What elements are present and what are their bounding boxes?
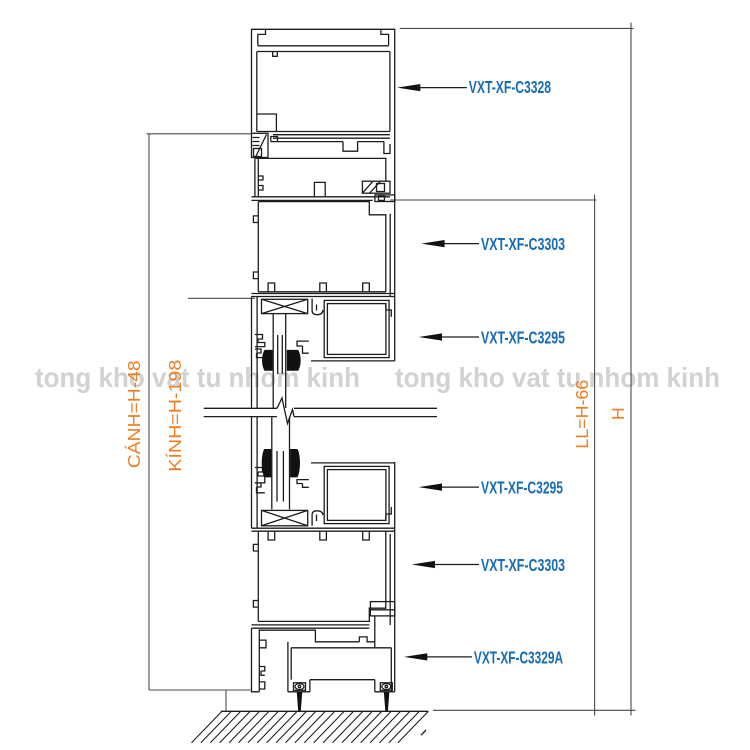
svg-text:VXT-XF-C3303: VXT-XF-C3303 — [481, 555, 565, 575]
svg-text:VXT-XF-C3329A: VXT-XF-C3329A — [474, 647, 563, 667]
svg-text:KÍNH=H-198: KÍNH=H-198 — [165, 360, 185, 472]
svg-text:VXT-XF-C3295: VXT-XF-C3295 — [481, 478, 563, 498]
svg-text:CÁNH=H-48: CÁNH=H-48 — [124, 360, 144, 468]
svg-text:tong kho vat tu nhom kinh: tong kho vat tu nhom kinh — [395, 362, 720, 393]
svg-text:H: H — [608, 407, 628, 420]
svg-text:VXT-XF-C3303: VXT-XF-C3303 — [481, 234, 565, 254]
svg-text:tong kho vat tu nhom kinh: tong kho vat tu nhom kinh — [35, 362, 360, 393]
svg-text:VXT-XF-C3295: VXT-XF-C3295 — [481, 327, 565, 347]
svg-text:VXT-XF-C3328: VXT-XF-C3328 — [469, 77, 551, 97]
svg-text:LL=H-66: LL=H-66 — [572, 380, 592, 449]
